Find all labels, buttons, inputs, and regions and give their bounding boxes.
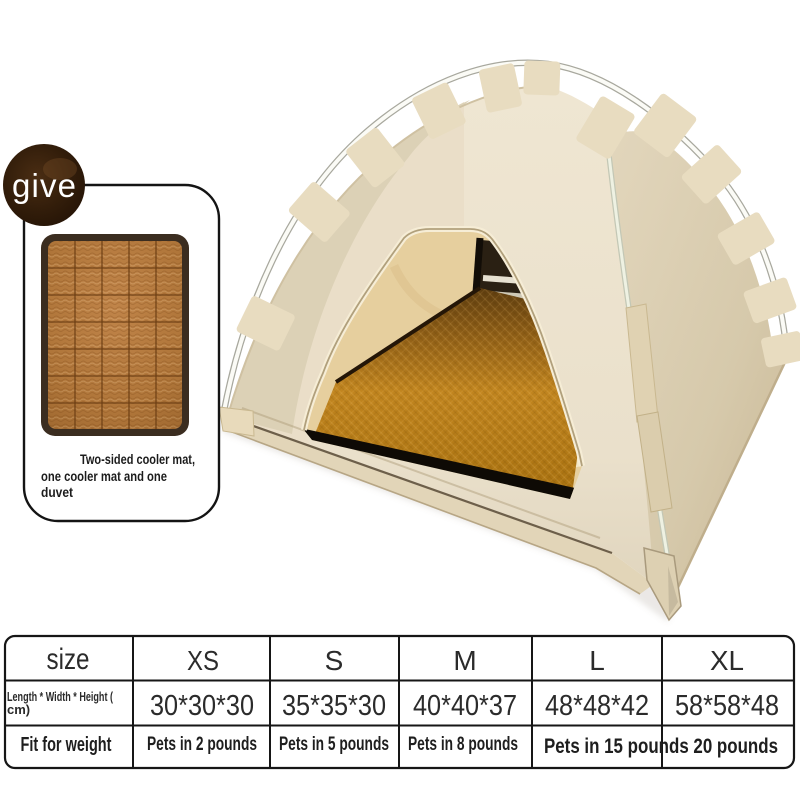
svg-text:Pets in 15 pounds 20 pounds: Pets in 15 pounds 20 pounds: [544, 735, 778, 758]
svg-text:Two-sided cooler mat,: Two-sided cooler mat,: [80, 452, 195, 467]
svg-text:Pets in 5 pounds: Pets in 5 pounds: [279, 734, 389, 755]
svg-text:30*30*30: 30*30*30: [150, 690, 254, 722]
svg-text:one cooler mat and one: one cooler mat and one: [41, 469, 167, 484]
svg-text:Pets in 8 pounds: Pets in 8 pounds: [408, 734, 518, 755]
svg-text:L: L: [589, 645, 605, 676]
svg-text:size: size: [47, 643, 90, 676]
svg-text:40*40*37: 40*40*37: [413, 690, 517, 722]
svg-text:XS: XS: [187, 645, 219, 676]
svg-text:cm): cm): [7, 702, 30, 717]
svg-text:35*35*30: 35*35*30: [282, 690, 386, 722]
svg-text:give: give: [12, 167, 76, 204]
svg-text:Pets in 2 pounds: Pets in 2 pounds: [147, 734, 257, 755]
svg-text:duvet: duvet: [41, 485, 73, 500]
svg-text:48*48*42: 48*48*42: [545, 690, 649, 722]
svg-text:M: M: [453, 645, 476, 676]
svg-text:Fit for weight: Fit for weight: [21, 733, 112, 756]
svg-text:XL: XL: [710, 645, 744, 676]
svg-text:S: S: [325, 645, 344, 676]
svg-text:58*58*48: 58*58*48: [675, 690, 779, 722]
